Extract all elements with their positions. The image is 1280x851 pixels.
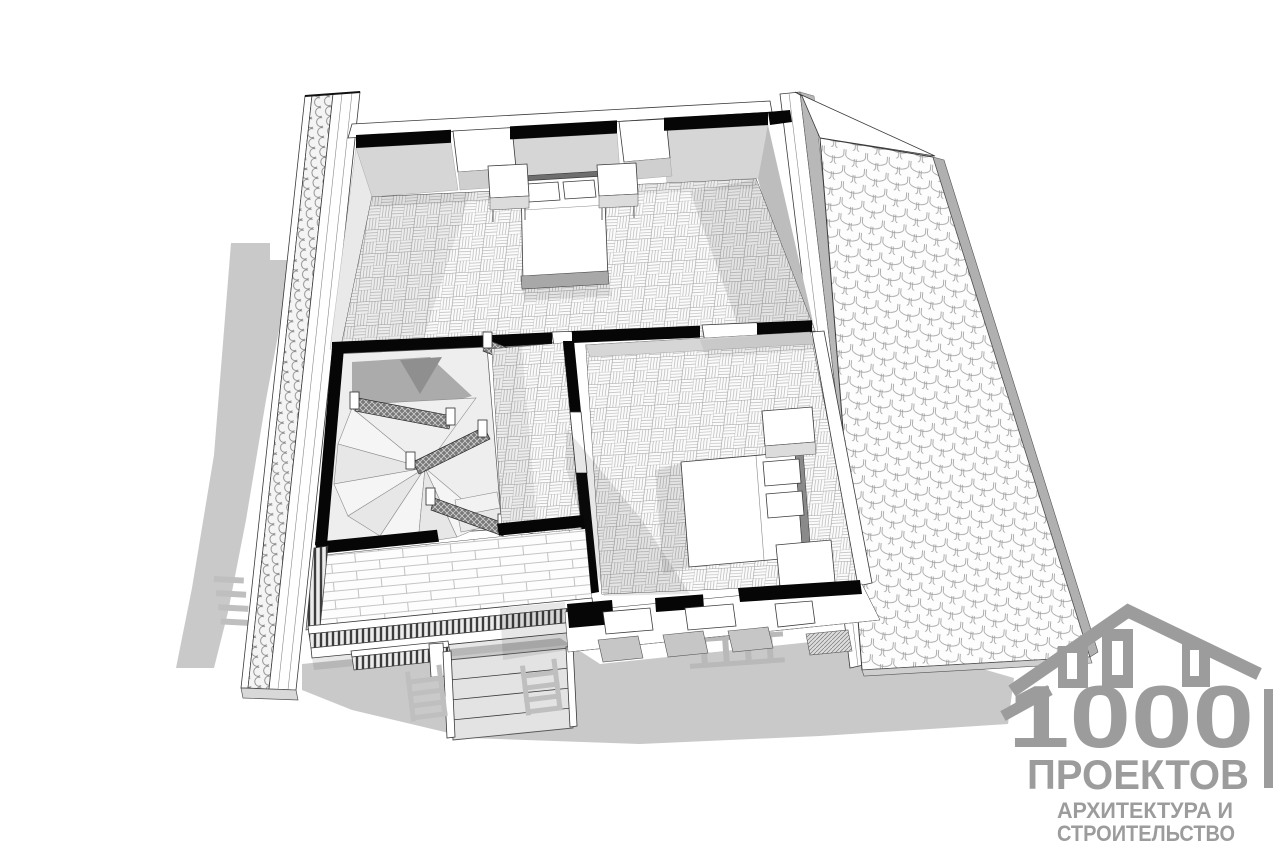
pillow	[763, 459, 801, 486]
floor-plan-3d-cutaway: 1000 ПРОЕКТОВ АРХИТЕКТУРА И СТРОИТЕЛЬСТВ…	[0, 0, 1280, 851]
logo-tagline-1: АРХИТЕКТУРА И	[1057, 798, 1233, 823]
pillow	[766, 491, 804, 518]
nightstand-top	[762, 407, 815, 446]
facade-vent-grille	[806, 630, 852, 655]
window-head-box	[775, 601, 815, 627]
window-recess-2	[619, 119, 670, 162]
left-roof-end-cap	[241, 688, 298, 700]
back-wall-inner-face-right	[664, 125, 768, 184]
pillow	[527, 182, 560, 202]
window-head-box	[603, 608, 653, 634]
railing-post	[429, 643, 445, 677]
nightstand-front	[490, 196, 529, 210]
facade-window	[663, 631, 708, 657]
logo-tagline-2: СТРОИТЕЛЬСТВО	[1057, 821, 1235, 846]
logo-vertical-bar	[1264, 689, 1273, 788]
logo-name: ПРОЕКТОВ	[1027, 751, 1249, 798]
nightstand-top	[597, 163, 638, 196]
nightstand-front	[599, 194, 638, 208]
bedroom-2	[566, 331, 872, 605]
back-wall-inner-face-left	[356, 143, 458, 197]
window-head-box	[685, 604, 736, 630]
pillow	[563, 180, 596, 199]
nightstand-top	[488, 164, 529, 198]
architectural-rendering-canvas: 1000 ПРОЕКТОВ АРХИТЕКТУРА И СТРОИТЕЛЬСТВ…	[0, 0, 1280, 851]
nightstand-bedroom-2	[762, 407, 816, 458]
facade-window	[598, 636, 643, 662]
facade-window	[728, 627, 773, 652]
bedroom-1	[330, 101, 815, 352]
